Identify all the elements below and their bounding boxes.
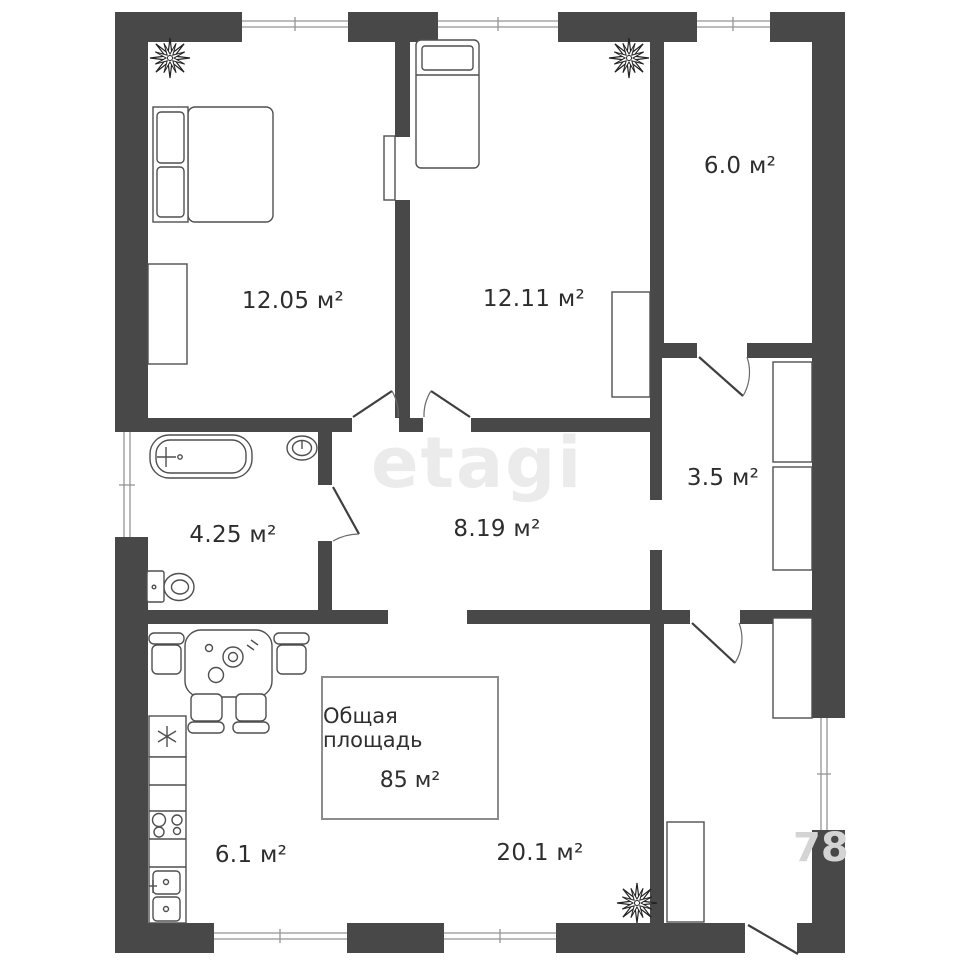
- window-top-1: [242, 12, 348, 42]
- double-bed: [153, 107, 273, 222]
- chair: [233, 694, 269, 733]
- window-top-3: [697, 12, 770, 42]
- room-label-storage: 6.0 м²: [704, 153, 776, 179]
- window-bottom-2: [444, 923, 556, 953]
- bathtub: [150, 435, 252, 478]
- chair: [149, 633, 184, 674]
- plant-icon: [149, 37, 191, 79]
- room-label-kitchen: 6.1 м²: [215, 842, 287, 868]
- wardrobe-closet-1: [773, 362, 812, 462]
- total-area-title: Общая площадь: [323, 704, 497, 752]
- wardrobe-bedroom1: [148, 264, 187, 364]
- wardrobe-hall: [773, 618, 812, 718]
- fridge-icon: [149, 716, 186, 757]
- toilet: [147, 571, 194, 602]
- room-label-bathroom: 4.25 м²: [189, 522, 276, 548]
- room-label-living: 20.1 м²: [496, 840, 583, 866]
- door-bedroom1: [353, 391, 398, 417]
- cabinet-hall: [667, 822, 704, 922]
- plant-icon: [608, 37, 650, 79]
- floorplan: etagi: [0, 0, 960, 960]
- wardrobe-closet-2: [773, 467, 812, 570]
- wardrobe-bedroom2: [612, 292, 650, 397]
- single-bed: [416, 40, 479, 168]
- total-area-value: 85 м²: [380, 768, 440, 793]
- window-bottom-1: [214, 923, 347, 953]
- room-label-closet: 3.5 м²: [687, 465, 759, 491]
- chair: [188, 694, 224, 733]
- window-top-2: [438, 12, 558, 42]
- window-right-hall: [812, 718, 845, 830]
- window-left-bathroom: [115, 432, 148, 537]
- door-entrance: [745, 923, 798, 954]
- room-label-bedroom2: 12.11 м²: [483, 286, 585, 312]
- radiator: [384, 136, 395, 200]
- room-label-corridor: 8.19 м²: [453, 516, 540, 542]
- dining-table: [185, 630, 272, 697]
- bathroom-sink: [287, 436, 317, 460]
- door-storage: [699, 357, 750, 396]
- room-label-bedroom1: 12.05 м²: [242, 288, 344, 314]
- total-area-box: Общая площадь 85 м²: [321, 676, 499, 820]
- door-hallway: [692, 623, 742, 663]
- chair: [274, 633, 309, 674]
- door-bedroom2: [424, 391, 470, 417]
- corner-watermark: 78: [793, 828, 849, 868]
- door-bathroom: [333, 487, 359, 541]
